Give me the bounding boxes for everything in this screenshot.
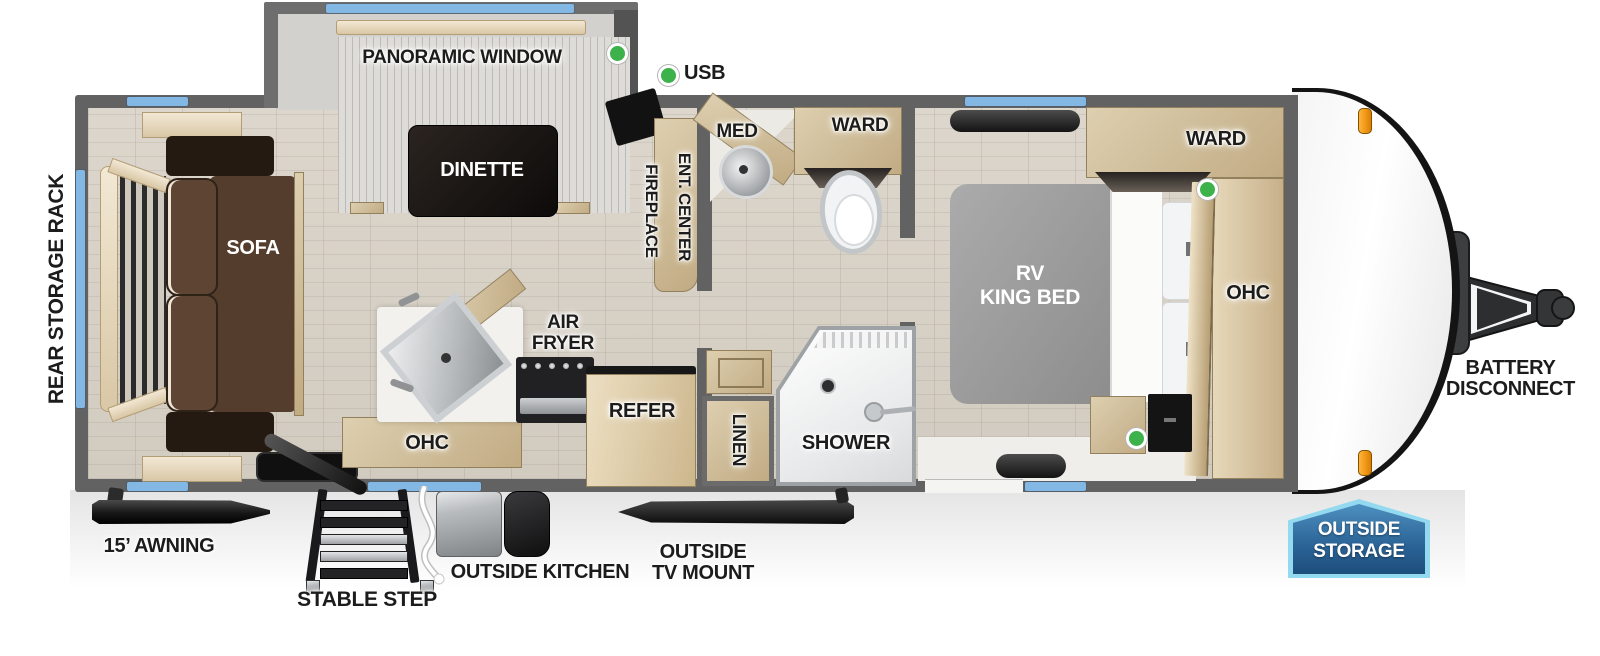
air-fryer-label: AIR FRYER — [515, 312, 611, 354]
step-rung — [320, 551, 408, 562]
battery-disconnect-label: BATTERY DISCONNECT — [1428, 356, 1593, 402]
bedroom-ohc-panel — [1212, 178, 1284, 479]
bedroom-ohc-label: OHC — [1218, 282, 1278, 304]
refrigerator — [586, 374, 696, 487]
floorplan-canvas: PANORAMIC WINDOW DINETTE USB REAR STORAG… — [0, 0, 1600, 656]
window — [76, 170, 85, 408]
step-rung — [320, 500, 408, 511]
storage-rack-slats — [120, 176, 166, 404]
bed-label-line2: KING BED — [980, 286, 1080, 310]
stove-knob-icon — [549, 363, 555, 369]
toilet-lid — [834, 194, 874, 246]
bedroom-soffit — [996, 454, 1066, 478]
cooktop-knobs — [521, 361, 591, 371]
awning-roller — [92, 500, 270, 524]
window — [127, 97, 188, 106]
stove-knob-icon — [577, 363, 583, 369]
fireplace-label: FIREPLACE — [641, 161, 661, 261]
window — [127, 482, 188, 491]
outside-storage-line1: OUTSIDE — [1318, 519, 1400, 541]
refer-label: REFER — [605, 400, 679, 422]
outside-griddle — [436, 491, 502, 557]
step-rung — [320, 534, 408, 545]
end-table — [142, 112, 242, 138]
bed-label-line1: RV — [1016, 262, 1044, 286]
stove-knob-icon — [535, 363, 541, 369]
rv-king-bed-label: RV KING BED — [958, 262, 1102, 310]
bench-base — [350, 202, 384, 214]
battery-label-line1: BATTERY — [1465, 358, 1555, 379]
clearance-light-icon — [1358, 108, 1372, 134]
bathroom-ward-label: WARD — [816, 116, 904, 136]
usb-indicator-dot — [1197, 179, 1218, 200]
shower-drain — [820, 378, 836, 394]
bathroom-sink-drain — [739, 165, 748, 174]
cabinet-handle-icon — [1164, 418, 1176, 422]
entry-door — [925, 479, 1023, 493]
med-label: MED — [710, 122, 764, 142]
window-valance — [336, 20, 586, 35]
usb-indicator-dot — [607, 43, 628, 64]
sofa-armrest — [166, 136, 274, 176]
stove-knob-icon — [563, 363, 569, 369]
usb-legend-label: USB — [684, 62, 738, 84]
shower-label: SHOWER — [796, 432, 896, 454]
dinette-label: DINETTE — [408, 160, 556, 180]
battery-label-line2: DISCONNECT — [1446, 379, 1575, 400]
bedroom-ward-label: WARD — [1176, 128, 1256, 150]
sofa-body — [210, 176, 296, 412]
sofa-seat-cushion — [166, 178, 218, 296]
linen-counter-inset — [718, 358, 764, 388]
slide-window — [326, 4, 574, 13]
outside-tv-mount-label: OUTSIDE TV MOUNT — [640, 540, 766, 586]
linen-label: LINEN — [729, 399, 749, 481]
tv-label-line2: TV MOUNT — [652, 563, 754, 584]
bedroom-soffit — [950, 110, 1080, 132]
sofa-seat-cushion — [166, 294, 218, 412]
shower-ridges — [814, 332, 908, 348]
step-rung — [320, 517, 408, 528]
bed-sheet — [1110, 186, 1162, 402]
storage-rack-rail — [100, 166, 118, 412]
sofa-back-trim — [294, 172, 304, 416]
rear-storage-rack-label: REAR STORAGE RACK — [45, 174, 69, 404]
panoramic-window-label: PANORAMIC WINDOW — [336, 48, 588, 68]
outside-kitchen-label: OUTSIDE KITCHEN — [440, 560, 640, 584]
front-cap-interior-wall — [1282, 95, 1298, 492]
kitchen-ohc-label: OHC — [392, 432, 462, 454]
awning-label: 15’ AWNING — [94, 534, 224, 558]
air-fryer-line1: AIR — [547, 312, 579, 333]
tv-mount-stub — [835, 487, 849, 504]
outside-storage-label: OUTSIDE STORAGE — [1293, 516, 1425, 566]
bedroom-dark-cabinet — [1148, 394, 1192, 452]
sink-drain — [441, 353, 451, 363]
sofa-armrest — [166, 412, 274, 452]
sofa-label: SOFA — [210, 238, 296, 258]
clearance-light-icon — [1358, 450, 1372, 476]
oven-drawer — [520, 398, 590, 414]
window — [965, 97, 1086, 106]
usb-legend-dot-icon — [658, 65, 679, 86]
ent-center-label: ENT. CENTER — [674, 145, 694, 269]
usb-indicator-dot — [1126, 428, 1147, 449]
stove-knob-icon — [521, 363, 527, 369]
tv-label-line1: OUTSIDE — [660, 542, 747, 563]
step-rung — [320, 568, 408, 579]
outside-appliance-case — [504, 491, 550, 557]
front-cap — [1292, 92, 1452, 490]
outside-storage-line2: STORAGE — [1313, 541, 1405, 563]
bench-base — [556, 202, 590, 214]
window — [1025, 482, 1086, 491]
outside-tv-mount-bar — [618, 500, 854, 524]
air-fryer-line2: FRYER — [532, 333, 594, 354]
stable-step-label: STABLE STEP — [296, 588, 438, 612]
end-table — [142, 456, 242, 482]
